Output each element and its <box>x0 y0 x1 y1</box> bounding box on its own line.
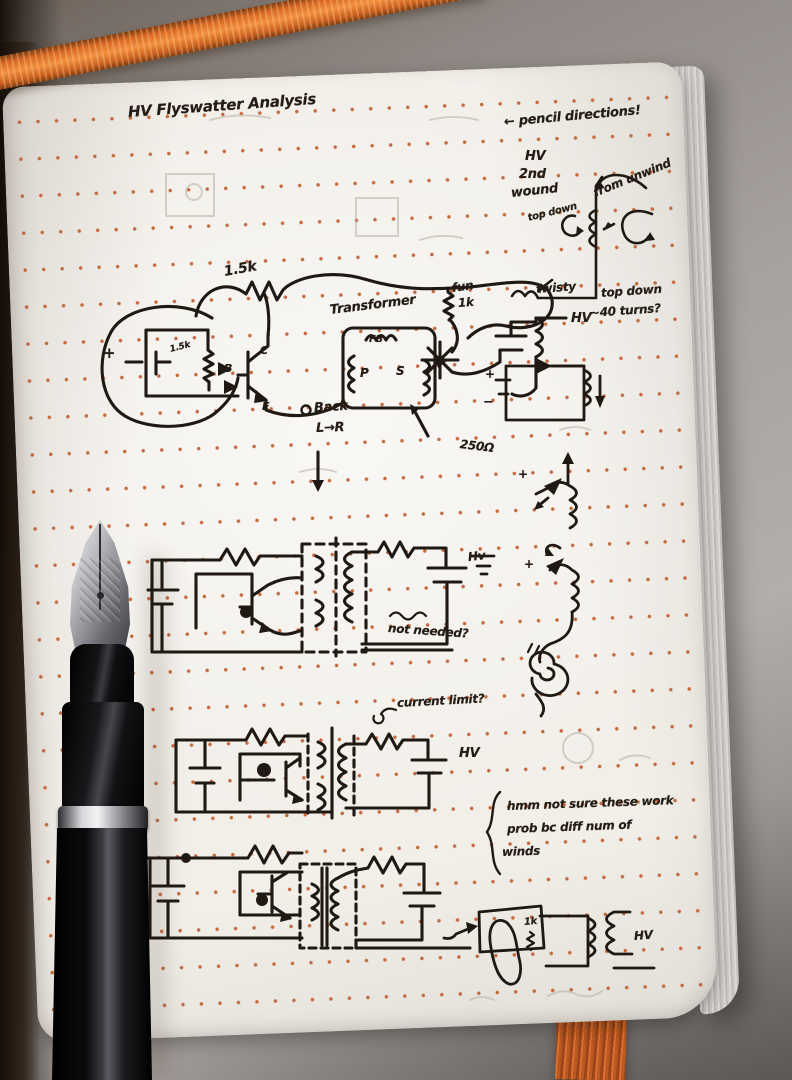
notebook-page <box>2 61 718 1042</box>
pen-shadow <box>146 556 176 1076</box>
notebook-photo: HV Flyswatter Analysis ← pencil directio… <box>0 0 792 1080</box>
